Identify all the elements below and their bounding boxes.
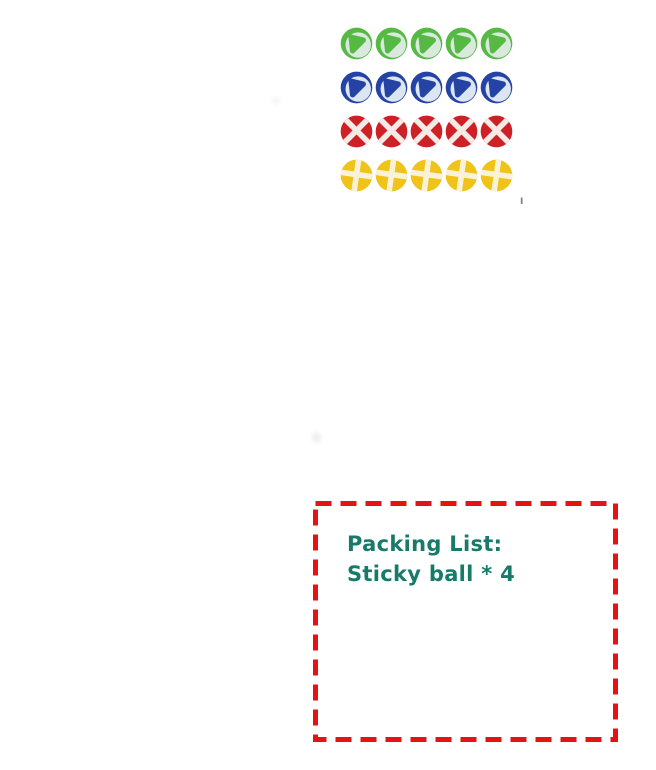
sticky-ball-blue <box>375 71 408 104</box>
sticky-ball-green <box>340 27 373 60</box>
blue-ball-icon <box>375 71 408 104</box>
green-ball-icon <box>445 27 478 60</box>
sticky-ball-blue <box>410 71 443 104</box>
sticky-ball-green <box>445 27 478 60</box>
sticky-ball-blue <box>340 71 373 104</box>
red-ball-icon <box>375 115 408 148</box>
green-ball-icon <box>410 27 443 60</box>
yellow-ball-icon <box>410 159 443 192</box>
sticky-ball-green <box>375 27 408 60</box>
sticky-ball-yellow <box>480 159 513 192</box>
green-ball-icon <box>340 27 373 60</box>
red-ball-icon <box>445 115 478 148</box>
yellow-ball-icon <box>375 159 408 192</box>
sticky-ball-yellow <box>340 159 373 192</box>
sticky-ball-red <box>410 115 443 148</box>
red-ball-icon <box>340 115 373 148</box>
tick-mark: I <box>520 197 523 207</box>
sticky-ball-grid <box>340 27 515 203</box>
sticky-ball-blue <box>445 71 478 104</box>
packing-list: Packing List: Sticky ball * 4 <box>347 529 515 589</box>
yellow-ball-icon <box>340 159 373 192</box>
product-listing-image: I Packing List: Sticky ball * 4 <box>0 0 656 770</box>
smudge-artifact-faint <box>272 98 280 104</box>
yellow-ball-icon <box>445 159 478 192</box>
blue-ball-icon <box>410 71 443 104</box>
yellow-ball-icon <box>480 159 513 192</box>
blue-ball-icon <box>340 71 373 104</box>
sticky-ball-red <box>340 115 373 148</box>
sticky-ball-red <box>480 115 513 148</box>
blue-ball-icon <box>445 71 478 104</box>
green-ball-icon <box>375 27 408 60</box>
sticky-ball-green <box>480 27 513 60</box>
red-ball-icon <box>480 115 513 148</box>
green-ball-icon <box>480 27 513 60</box>
sticky-ball-yellow <box>445 159 478 192</box>
packing-list-title: Packing List: <box>347 529 515 559</box>
sticky-ball-yellow <box>410 159 443 192</box>
blue-ball-icon <box>480 71 513 104</box>
sticky-ball-red <box>375 115 408 148</box>
sticky-ball-yellow <box>375 159 408 192</box>
packing-list-item: Sticky ball * 4 <box>347 559 515 589</box>
sticky-ball-green <box>410 27 443 60</box>
sticky-ball-blue <box>480 71 513 104</box>
smudge-artifact <box>312 432 321 443</box>
red-ball-icon <box>410 115 443 148</box>
sticky-ball-red <box>445 115 478 148</box>
